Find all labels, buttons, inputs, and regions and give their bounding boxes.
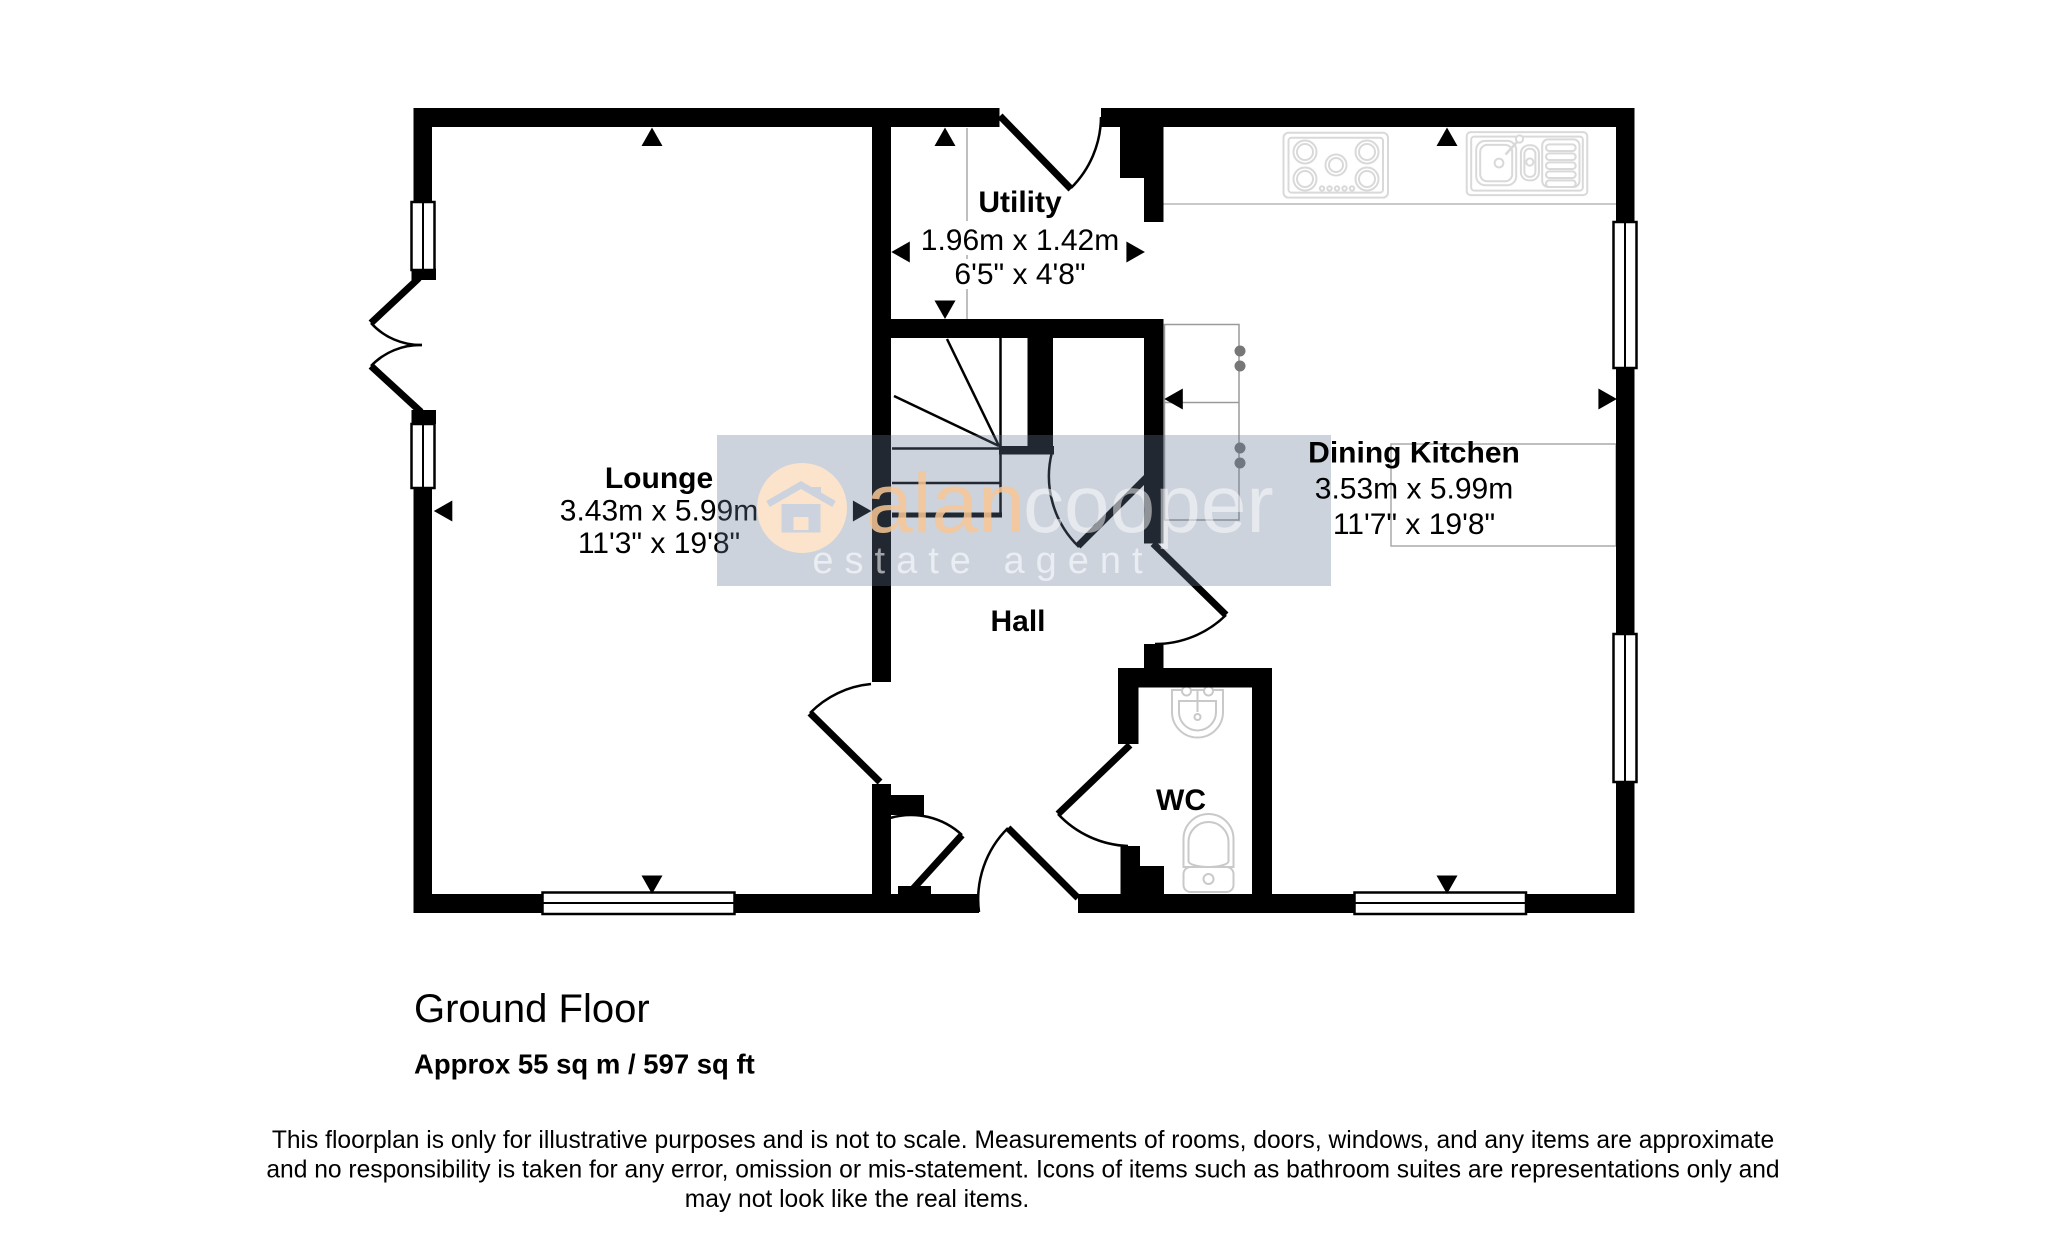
- svg-text:cooper: cooper: [1023, 459, 1274, 550]
- svg-text:1.96m x 1.42m: 1.96m x 1.42m: [921, 224, 1119, 257]
- svg-text:may not look like the real ite: may not look like the real items.: [685, 1186, 1029, 1213]
- svg-text:Hall: Hall: [990, 605, 1045, 638]
- svg-text:and no responsibility is taken: and no responsibility is taken for any e…: [266, 1157, 1779, 1184]
- svg-text:Approx 55 sq m / 597 sq ft: Approx 55 sq m / 597 sq ft: [414, 1049, 755, 1080]
- svg-text:11'7" x 19'8": 11'7" x 19'8": [1333, 508, 1495, 541]
- svg-text:Ground Floor: Ground Floor: [414, 987, 650, 1031]
- svg-text:6'5" x 4'8": 6'5" x 4'8": [954, 258, 1085, 291]
- svg-text:This floorplan is only for ill: This floorplan is only for illustrative …: [272, 1127, 1774, 1154]
- svg-text:Lounge: Lounge: [605, 462, 713, 495]
- svg-text:Utility: Utility: [978, 186, 1062, 219]
- svg-text:WC: WC: [1156, 784, 1206, 817]
- svg-text:estate agent: estate agent: [812, 540, 1153, 582]
- svg-text:alan: alan: [866, 456, 1025, 550]
- svg-text:11'3" x 19'8": 11'3" x 19'8": [578, 527, 740, 560]
- svg-text:Dining Kitchen: Dining Kitchen: [1308, 437, 1520, 470]
- svg-text:3.53m x 5.99m: 3.53m x 5.99m: [1315, 473, 1513, 506]
